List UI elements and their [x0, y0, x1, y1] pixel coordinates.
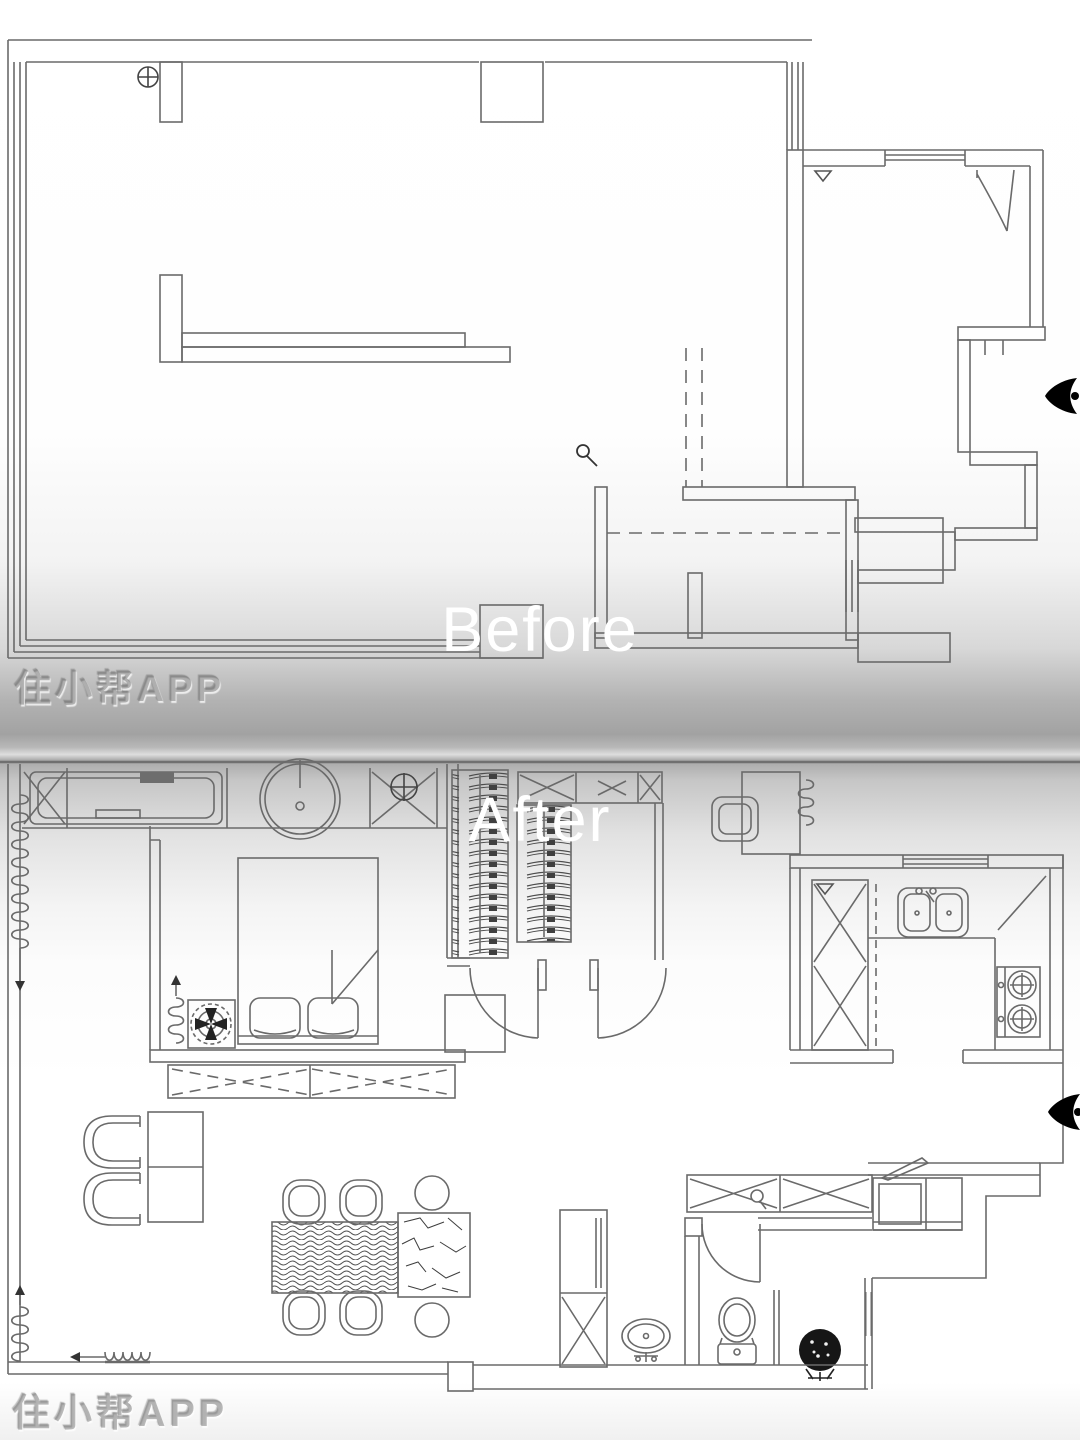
dimension-tag [140, 772, 174, 783]
gas-stove [997, 967, 1040, 1037]
radiator-coil-icon [70, 1352, 150, 1362]
door-swing-left [470, 968, 538, 1038]
triangle-mark [815, 171, 831, 181]
bathroom [685, 1175, 872, 1381]
armchair [84, 1116, 140, 1168]
blanket-fold [332, 950, 378, 1004]
radiator-coil-icon [169, 975, 184, 1043]
kitchen-sink [898, 888, 968, 937]
washbasin [622, 1319, 670, 1362]
bathroom-door [702, 1224, 760, 1282]
kitchen-window [903, 855, 988, 868]
floor-drain-icon [390, 773, 418, 801]
door-swing-right [598, 968, 666, 1038]
ceiling-fan-icon [188, 1000, 235, 1048]
stool [415, 1176, 449, 1210]
overhead-cabinet [518, 772, 662, 803]
wardrobe-right [517, 805, 571, 942]
sight-direction-icon [1048, 1094, 1080, 1130]
entry-cabinet [560, 1210, 607, 1367]
floorplan-linework [0, 0, 1080, 1440]
open-door-leaf [977, 170, 1014, 231]
survey-point-icon [138, 67, 158, 87]
stool [415, 1303, 449, 1337]
tv-cabinet [168, 1065, 455, 1098]
desk-and-chair [712, 772, 800, 854]
toilet [718, 1298, 756, 1364]
after-floorplan [0, 759, 1080, 1391]
dining-table [272, 1213, 470, 1297]
plant-icon [799, 1329, 841, 1381]
wardrobe-left [452, 770, 508, 958]
marble-texture [402, 1218, 466, 1292]
before-floorplan [8, 40, 1045, 662]
bed-left [238, 858, 378, 1044]
sight-direction-icon [1045, 378, 1079, 414]
demolition-dashed-walls [607, 348, 846, 533]
kitchen [790, 780, 1063, 1063]
floorplan-comparison-image: Before After 住小帮APP 住小帮APP [0, 0, 1080, 1440]
side-console [148, 1112, 203, 1222]
kitchen-tall-cabinet [812, 880, 876, 1050]
armchair [84, 1173, 140, 1225]
laundry-counter [22, 759, 447, 839]
magnifier-icon [577, 445, 597, 466]
washing-machine [868, 1158, 1040, 1230]
round-basin [260, 759, 340, 839]
